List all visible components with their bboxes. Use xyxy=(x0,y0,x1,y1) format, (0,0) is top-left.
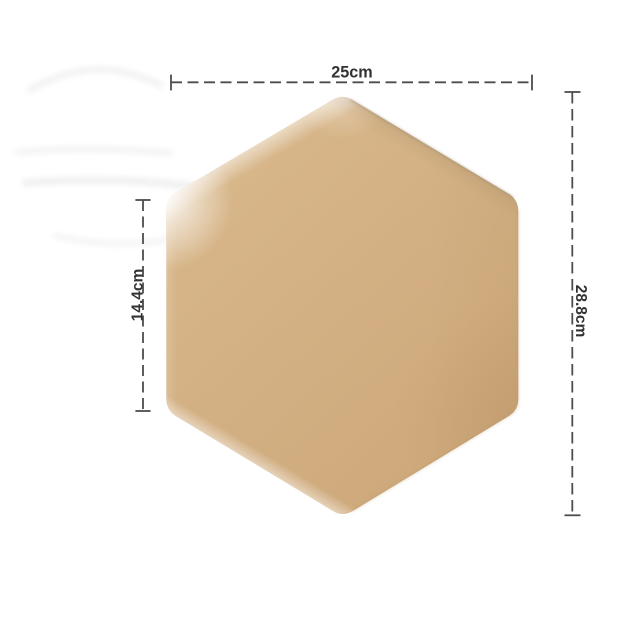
svg-text:14.4cm: 14.4cm xyxy=(130,269,147,322)
svg-text:25cm: 25cm xyxy=(331,64,372,82)
svg-text:28.8cm: 28.8cm xyxy=(572,285,589,338)
